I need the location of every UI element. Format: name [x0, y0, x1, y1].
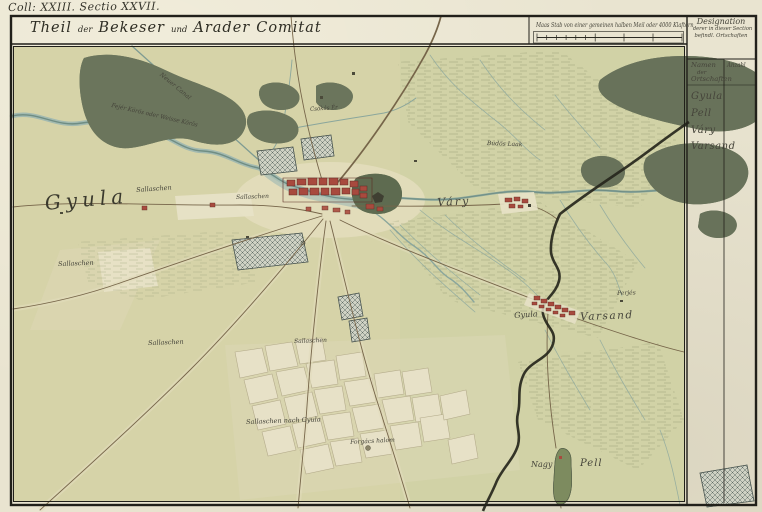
place-list-item: Pell	[691, 109, 712, 120]
place-list-item: Váry	[691, 126, 716, 137]
title-word: Theil	[30, 20, 72, 36]
sheet-corner-label: Coll: XXIII. Sectio XXVII.	[8, 1, 160, 14]
sheet-title: Theil der Bekeser und Arader Comitat	[30, 20, 322, 36]
nagy-pell-village	[553, 449, 571, 505]
label-nagy: Nagy	[531, 461, 552, 469]
label-varsand: Varsand	[580, 310, 634, 323]
scale-caption: Maas Stab von einer gemeinen halben Meil…	[536, 23, 694, 29]
label-sallaschen: Sallaschen	[58, 260, 94, 268]
title-word: Bekeser	[98, 20, 165, 36]
label-perjes: Perjés	[617, 290, 636, 297]
label-sallaschen: Sallaschen	[294, 338, 327, 345]
place-list-item: Varsand	[691, 142, 735, 153]
title-word: und	[171, 25, 187, 35]
label-sallaschen: Sallaschen	[236, 194, 269, 201]
map-sheet: Coll: XXIII. Sectio XXVII. Theil der Bek…	[0, 0, 762, 512]
designation-heading-line: derer in dieser Section	[693, 26, 749, 33]
count-column-header: Anzahl	[727, 63, 746, 69]
place-list-item: Gyula	[691, 92, 723, 103]
designation-panel-heading: Designation derer in dieser Section befi…	[689, 17, 753, 40]
label-varsand-prefix: Gyula	[514, 310, 538, 320]
title-word: der	[78, 25, 93, 35]
label-pell: Pell	[580, 459, 603, 470]
label-budos-laak: Büdös Laak	[487, 141, 523, 149]
names-header-line: Ortschaften	[691, 76, 732, 84]
label-sallaschen: Sallaschen	[148, 339, 184, 347]
map-artwork	[0, 0, 762, 512]
names-header-line: Namen	[691, 62, 732, 70]
label-vary: Váry	[437, 195, 471, 208]
names-column-header: Namen der Ortschaften	[691, 62, 732, 84]
title-word: Comitat	[256, 20, 322, 36]
scale-bar	[537, 34, 682, 42]
designation-heading-line: Designation	[689, 17, 753, 26]
title-word: Arader	[193, 20, 250, 36]
designation-heading-line: befindl. Ortschaften	[692, 33, 750, 40]
